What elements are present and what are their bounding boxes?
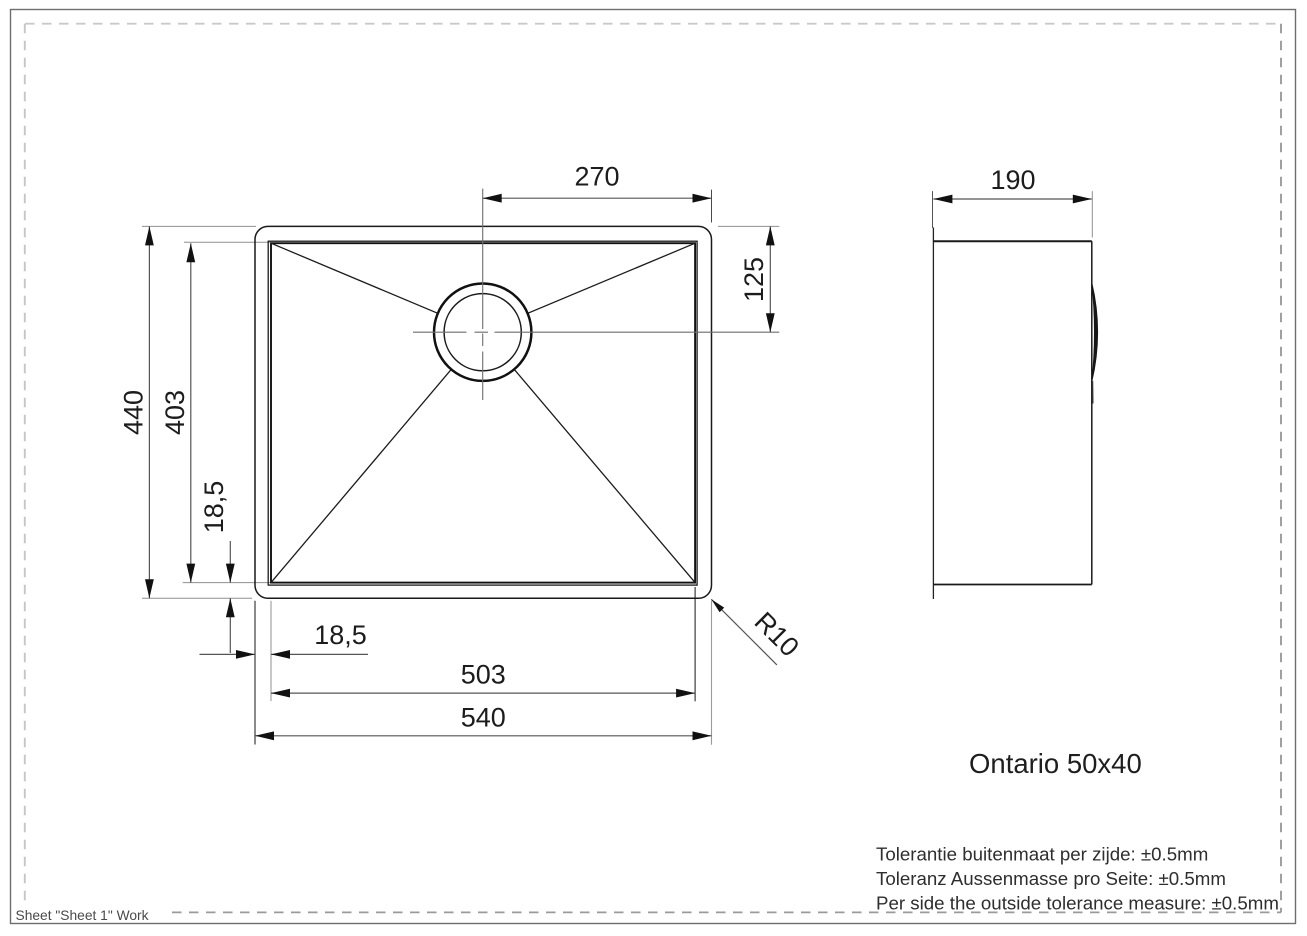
- svg-text:403: 403: [160, 390, 190, 435]
- svg-text:270: 270: [574, 162, 619, 192]
- svg-text:440: 440: [118, 390, 148, 435]
- svg-text:Tolerantie buitenmaat per zijd: Tolerantie buitenmaat per zijde: ±0.5mm: [876, 844, 1208, 865]
- svg-text:Ontario 50x40: Ontario 50x40: [969, 748, 1142, 779]
- svg-text:18,5: 18,5: [314, 620, 367, 650]
- svg-text:190: 190: [990, 165, 1035, 195]
- svg-text:503: 503: [461, 659, 506, 689]
- svg-text:18,5: 18,5: [199, 481, 229, 534]
- svg-text:540: 540: [461, 703, 506, 733]
- svg-text:Per side the outside tolerance: Per side the outside tolerance measure: …: [876, 892, 1279, 913]
- svg-text:Toleranz Aussenmasse pro Seite: Toleranz Aussenmasse pro Seite: ±0.5mm: [876, 868, 1226, 889]
- svg-text:125: 125: [739, 257, 769, 302]
- svg-text:Sheet "Sheet 1" Work: Sheet "Sheet 1" Work: [16, 908, 149, 923]
